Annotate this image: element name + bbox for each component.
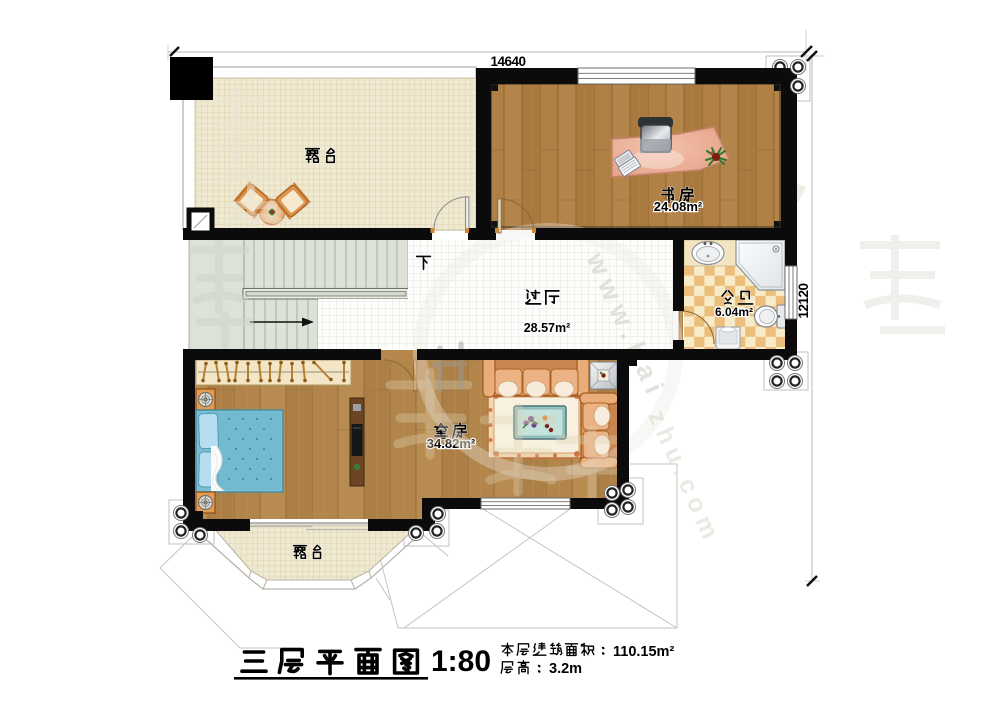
svg-text:24.08m²: 24.08m² bbox=[654, 199, 703, 214]
svg-text:28.57m²: 28.57m² bbox=[524, 321, 571, 335]
svg-text:110.15m²: 110.15m² bbox=[613, 644, 674, 660]
svg-text:3.2m: 3.2m bbox=[549, 661, 582, 677]
svg-text:34.82m²: 34.82m² bbox=[427, 436, 476, 451]
svg-text:12120: 12120 bbox=[796, 283, 811, 318]
svg-text:1:80: 1:80 bbox=[431, 645, 491, 678]
svg-text:14640: 14640 bbox=[490, 54, 525, 69]
svg-text:6.04m²: 6.04m² bbox=[715, 305, 753, 319]
